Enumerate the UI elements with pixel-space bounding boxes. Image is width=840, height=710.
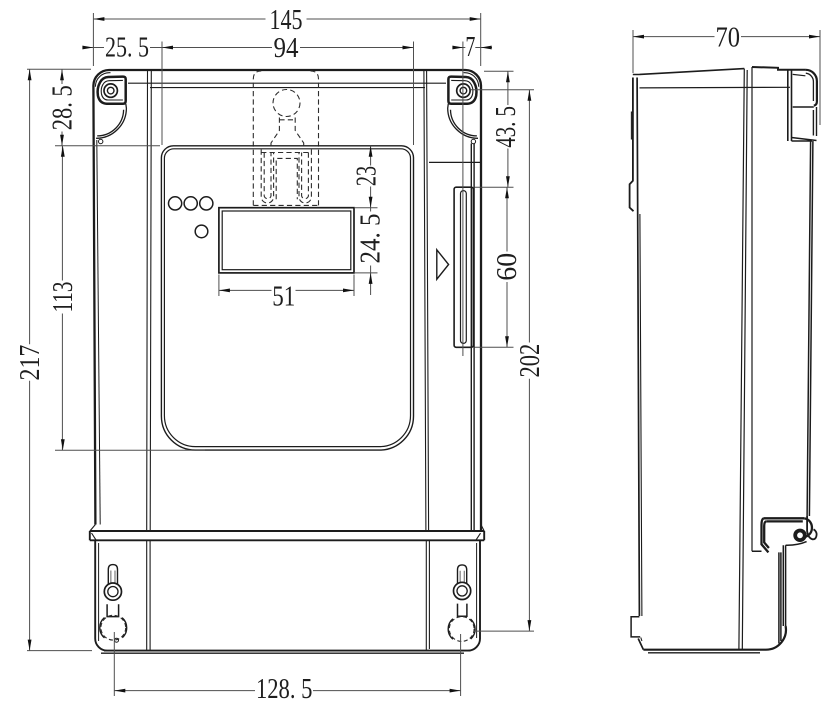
svg-text:217: 217 [15, 345, 46, 381]
svg-text:24. 5: 24. 5 [356, 214, 387, 264]
svg-text:23: 23 [351, 166, 382, 186]
svg-text:60: 60 [492, 253, 523, 281]
svg-text:51: 51 [272, 282, 295, 313]
svg-text:28. 5: 28. 5 [47, 85, 78, 130]
svg-text:94: 94 [274, 33, 299, 64]
svg-text:43. 5: 43. 5 [491, 106, 522, 147]
svg-text:25. 5: 25. 5 [105, 33, 149, 64]
svg-text:70: 70 [716, 22, 741, 53]
svg-text:7: 7 [465, 32, 475, 63]
svg-text:113: 113 [48, 282, 79, 313]
svg-text:145: 145 [270, 5, 303, 36]
svg-text:202: 202 [515, 344, 546, 378]
svg-text:128. 5: 128. 5 [256, 674, 313, 705]
